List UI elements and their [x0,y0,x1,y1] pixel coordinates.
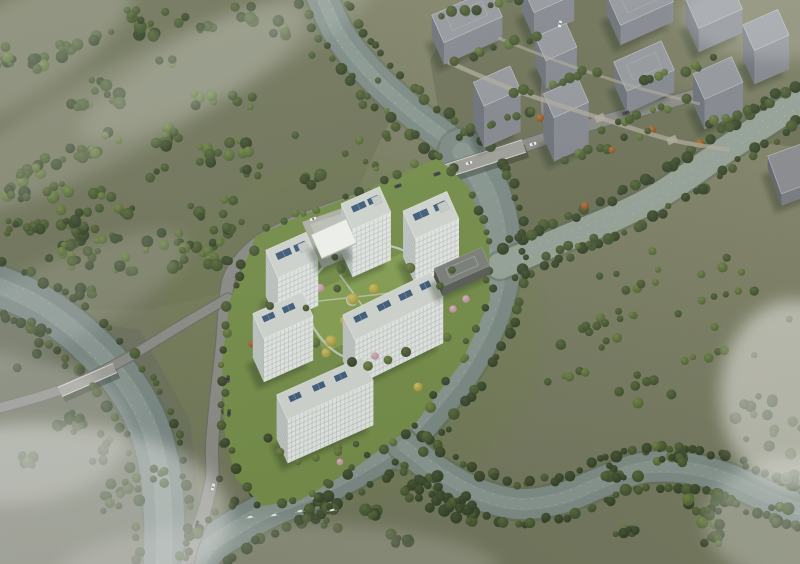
atmosphere-layer [0,0,800,564]
color-grade [0,0,800,564]
aerial-render: Aerial rendering of a riverside resident… [0,0,800,564]
scene-svg: Aerial rendering of a riverside resident… [0,0,800,564]
